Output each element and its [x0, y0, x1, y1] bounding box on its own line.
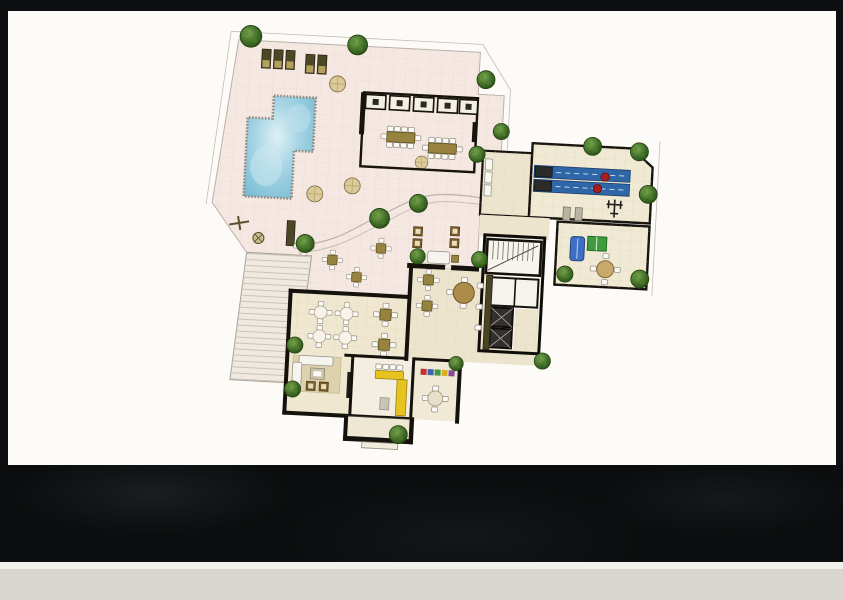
appliance [380, 398, 390, 410]
exercise-ball [601, 173, 610, 182]
scan-edge-white [0, 562, 843, 569]
scanned-presentation-board: lithos ARQUITETURA ENGENHARIA Planta Bai… [0, 0, 843, 600]
staircase [486, 239, 542, 276]
kitchen-counter [375, 370, 403, 379]
gym-bench [563, 207, 571, 220]
footer-band: lithos ARQUITETURA ENGENHARIA Planta Bai… [0, 465, 843, 562]
board-frame-top [0, 0, 843, 11]
elevators [489, 307, 513, 348]
board-frame-left [0, 0, 8, 470]
gym-bench [575, 208, 583, 221]
exercise-ball [593, 184, 602, 193]
sofa [299, 355, 333, 366]
scan-edge-gray [0, 569, 843, 600]
kitchen-counter [395, 379, 407, 415]
board-frame-right [836, 0, 843, 470]
